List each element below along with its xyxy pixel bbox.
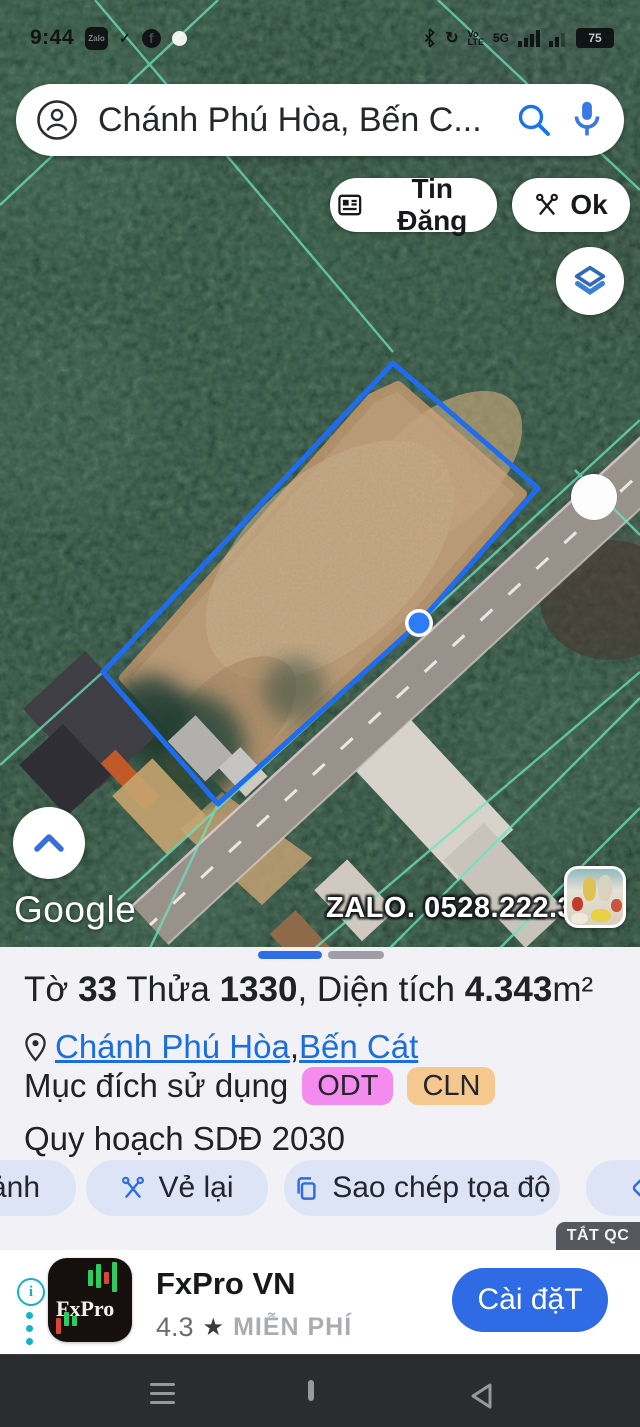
bluetooth-icon bbox=[423, 28, 436, 48]
account-icon[interactable] bbox=[36, 99, 78, 141]
title-sheet-label: Tờ bbox=[24, 970, 78, 1009]
ok-button[interactable]: Ok bbox=[512, 178, 630, 232]
ad-menu-dot bbox=[26, 1338, 33, 1345]
redraw-action-label: Vẻ lại bbox=[158, 1171, 233, 1205]
notification-dot bbox=[172, 31, 187, 46]
article-icon bbox=[336, 191, 364, 219]
pagination-dots bbox=[258, 951, 384, 959]
ad-rating-row: 4.3 ★ MIỄN PHÍ bbox=[156, 1312, 352, 1343]
signal-bars-icon bbox=[518, 29, 540, 47]
home-icon[interactable] bbox=[308, 1383, 314, 1398]
usage-row: Mục đích sử dụng ODT CLN bbox=[24, 1067, 495, 1105]
layers-button[interactable] bbox=[556, 247, 624, 315]
ad-menu-dot bbox=[26, 1325, 33, 1332]
parcel-title: Tờ 33 Thửa 1330, Diện tích 4.343m² bbox=[24, 970, 593, 1010]
rating-value: 4.3 bbox=[156, 1312, 194, 1343]
photo-action-button[interactable]: ảnh bbox=[0, 1160, 76, 1216]
collapse-panel-button[interactable] bbox=[13, 807, 85, 879]
plot-number: 1330 bbox=[220, 970, 298, 1009]
commune-link[interactable]: Chánh Phú Hòa bbox=[55, 1028, 290, 1066]
tin-dang-label: Tin Đăng bbox=[374, 173, 491, 237]
back-icon[interactable] bbox=[468, 1381, 494, 1411]
sheet-number: 33 bbox=[78, 970, 117, 1009]
midpoint-marker[interactable] bbox=[405, 609, 433, 637]
fxpro-app-icon[interactable]: FxPro bbox=[48, 1258, 132, 1342]
price-label: MIỄN PHÍ bbox=[233, 1313, 352, 1342]
layers-icon bbox=[570, 261, 610, 301]
usage-badge-cln: CLN bbox=[407, 1067, 495, 1105]
search-input[interactable]: Chánh Phú Hòa, Bến C... bbox=[98, 101, 514, 140]
check-icon: ✓ bbox=[119, 30, 131, 47]
copy-coordinates-label: Sao chép tọa độ bbox=[332, 1171, 551, 1205]
star-icon: ★ bbox=[203, 1313, 225, 1342]
photo-action-label: ảnh bbox=[0, 1171, 40, 1205]
location-pin-icon bbox=[24, 1032, 47, 1063]
ad-banner: i FxPro FxPro VN 4.3 ★ MIỄN PHÍ Cài đặT bbox=[0, 1250, 640, 1354]
directions-action-button[interactable] bbox=[586, 1160, 640, 1216]
pagination-dot-active bbox=[258, 951, 322, 959]
pagination-dot bbox=[328, 951, 384, 959]
sync-icon: ↻ bbox=[445, 28, 458, 48]
recent-apps-icon[interactable] bbox=[150, 1383, 175, 1404]
volte-icon: VoLTE bbox=[468, 30, 484, 46]
facebook-icon: f bbox=[142, 29, 161, 48]
signal-bars-2-icon bbox=[549, 29, 567, 47]
copy-icon bbox=[293, 1175, 320, 1202]
battery-icon: 75 bbox=[576, 28, 614, 48]
fxpro-icon-text: FxPro bbox=[56, 1296, 114, 1322]
directions-icon bbox=[631, 1173, 640, 1203]
dismiss-ad-button[interactable]: TẮT QC bbox=[556, 1222, 640, 1250]
ad-menu-dot bbox=[26, 1312, 33, 1319]
5g-icon: 5G bbox=[493, 31, 509, 45]
status-bar: 9:44 Zalo ✓ f ↻ VoLTE 5G 75 bbox=[0, 20, 640, 56]
zalo-icon: Zalo bbox=[85, 27, 108, 50]
ad-info-icon[interactable]: i bbox=[17, 1278, 45, 1306]
redraw-action-button[interactable]: Vẻ lại bbox=[86, 1160, 268, 1216]
title-area-label: , Diện tích bbox=[297, 970, 464, 1009]
android-nav-bar bbox=[0, 1354, 640, 1427]
chevron-up-icon bbox=[33, 833, 65, 853]
vertex-handle[interactable] bbox=[571, 474, 618, 521]
area-unit: m² bbox=[552, 970, 593, 1009]
planning-label: Quy hoạch SDĐ 2030 bbox=[24, 1120, 345, 1158]
photo-thumbnail[interactable] bbox=[564, 866, 626, 928]
mic-icon[interactable] bbox=[570, 99, 604, 141]
ad-app-name[interactable]: FxPro VN bbox=[156, 1266, 296, 1302]
tin-dang-button[interactable]: Tin Đăng bbox=[330, 178, 497, 232]
search-bar[interactable]: Chánh Phú Hòa, Bến C... bbox=[16, 84, 624, 156]
location-row: Chánh Phú Hòa , Bến Cát bbox=[24, 1028, 418, 1066]
clock: 9:44 bbox=[30, 26, 74, 50]
google-watermark: Google bbox=[14, 889, 136, 931]
usage-label: Mục đích sử dụng bbox=[24, 1067, 288, 1105]
ok-label: Ok bbox=[570, 189, 607, 221]
install-button[interactable]: Cài đặT bbox=[452, 1268, 608, 1332]
location-separator: , bbox=[290, 1028, 299, 1066]
parcel-info-panel: Tờ 33 Thửa 1330, Diện tích 4.343m² Chánh… bbox=[0, 947, 640, 1250]
search-icon[interactable] bbox=[514, 100, 554, 140]
title-plot-label: Thửa bbox=[117, 970, 220, 1009]
scissors-icon bbox=[120, 1175, 146, 1201]
area-value: 4.343 bbox=[465, 970, 553, 1009]
screen: 9:44 Zalo ✓ f ↻ VoLTE 5G 75 bbox=[0, 0, 640, 1427]
scissors-icon bbox=[534, 192, 560, 218]
usage-badge-odt: ODT bbox=[302, 1067, 393, 1105]
copy-coordinates-button[interactable]: Sao chép tọa độ bbox=[284, 1160, 560, 1216]
district-link[interactable]: Bến Cát bbox=[299, 1028, 418, 1066]
